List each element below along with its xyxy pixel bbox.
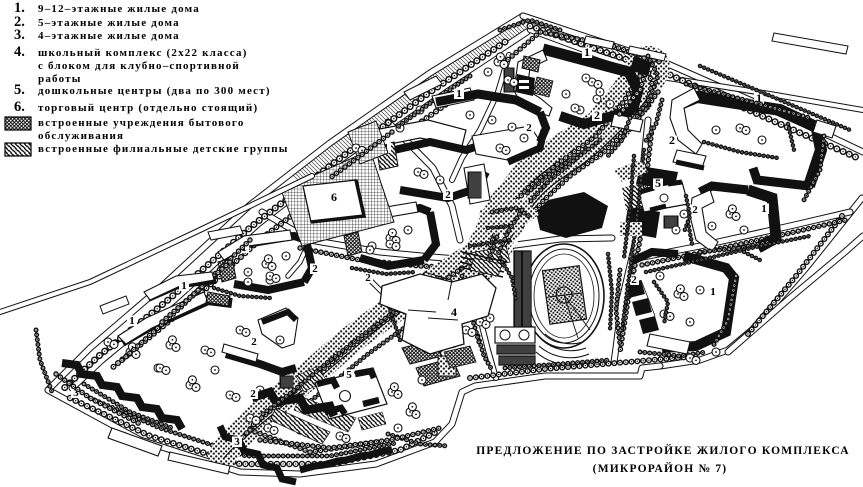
svg-text:4.: 4. xyxy=(14,44,25,60)
svg-text:2: 2 xyxy=(250,388,256,400)
svg-text:1: 1 xyxy=(584,45,590,59)
svg-text:с блоком для клубно–спортивной: с блоком для клубно–спортивной xyxy=(38,60,240,72)
svg-text:3.: 3. xyxy=(14,27,25,43)
svg-text:6.: 6. xyxy=(14,99,25,115)
svg-text:встроенные учреждения бытового: встроенные учреждения бытового xyxy=(38,117,245,129)
svg-text:2: 2 xyxy=(631,274,637,286)
svg-text:1: 1 xyxy=(456,88,462,100)
svg-text:2: 2 xyxy=(312,263,318,275)
svg-text:9–12–этажные жилые дома: 9–12–этажные жилые дома xyxy=(38,3,200,15)
svg-text:5–этажные жилые дома: 5–этажные жилые дома xyxy=(38,17,180,29)
svg-text:2: 2 xyxy=(526,122,532,134)
svg-text:ПРЕДЛОЖЕНИЕ ПО ЗАСТРОЙКЕ ЖИЛОГ: ПРЕДЛОЖЕНИЕ ПО ЗАСТРОЙКЕ ЖИЛОГО КОМПЛЕКС… xyxy=(476,443,850,457)
svg-text:школьный комплекс (2х22 класса: школьный комплекс (2х22 класса) xyxy=(38,47,248,59)
svg-text:1: 1 xyxy=(181,280,187,292)
svg-text:5.: 5. xyxy=(14,82,25,98)
svg-text:1: 1 xyxy=(710,286,716,298)
svg-text:встроенные филиальные детские: встроенные филиальные детские группы xyxy=(38,143,289,155)
svg-text:1: 1 xyxy=(761,203,767,215)
svg-text:6: 6 xyxy=(331,190,337,204)
svg-text:5: 5 xyxy=(346,369,352,381)
svg-text:2: 2 xyxy=(594,108,600,122)
svg-text:5: 5 xyxy=(655,176,661,190)
svg-text:3: 3 xyxy=(234,436,240,448)
svg-text:работы: работы xyxy=(38,73,82,85)
svg-text:2: 2 xyxy=(445,189,451,201)
svg-text:1: 1 xyxy=(129,315,135,327)
svg-text:2: 2 xyxy=(365,272,371,284)
svg-text:(МИКРОРАЙОН № 7): (МИКРОРАЙОН № 7) xyxy=(593,461,728,475)
svg-text:4: 4 xyxy=(451,305,457,319)
svg-text:2: 2 xyxy=(669,133,675,147)
svg-text:2: 2 xyxy=(692,204,698,216)
svg-text:обслуживания: обслуживания xyxy=(38,130,124,142)
svg-text:4–этажные жилые дома: 4–этажные жилые дома xyxy=(38,30,180,42)
svg-text:2: 2 xyxy=(251,336,257,348)
svg-text:торговый центр (отдельно стоящ: торговый центр (отдельно стоящий) xyxy=(38,102,258,114)
svg-text:дошкольные центры (два по 300: дошкольные центры (два по 300 мест) xyxy=(38,85,271,97)
